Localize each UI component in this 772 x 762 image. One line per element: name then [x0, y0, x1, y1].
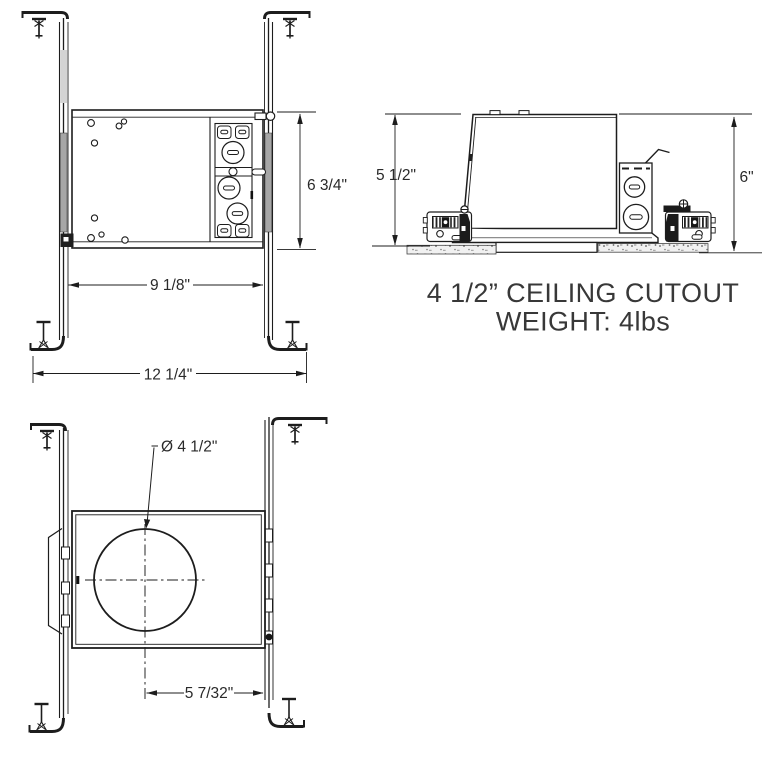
- ceiling-section-left: [407, 245, 496, 254]
- note-ceiling-cutout: 4 1/2” CEILING CUTOUT: [427, 278, 739, 308]
- dim-label-cutout-diameter: Ø 4 1/2": [161, 439, 217, 456]
- housing-front: [61, 110, 275, 248]
- side-view: 5 1/2" 6" 4 1/2” CEILING CUTOUT WEIGHT: …: [372, 111, 762, 337]
- mounting-nail: [32, 19, 46, 39]
- mounting-nail: [35, 704, 49, 731]
- mounting-nail: [40, 431, 54, 451]
- mounting-nail: [37, 322, 51, 349]
- bar-lock-screw: [255, 113, 266, 120]
- technical-drawing: 6 3/4" 9 1/8" 12 1/4": [0, 0, 772, 762]
- dim-side-housing-height: 5 1/2": [372, 115, 430, 247]
- dim-label-front-height: 6 3/4": [307, 177, 347, 194]
- dim-label-overall-width: 12 1/4": [144, 367, 193, 384]
- dim-housing-width: 9 1/8": [69, 277, 264, 294]
- ceiling-section-right: [598, 244, 708, 253]
- mounting-nail: [286, 322, 300, 349]
- mounting-plate-bottom: [72, 511, 265, 701]
- bar-foot-left: [423, 206, 471, 242]
- note-weight: WEIGHT: 4lbs: [496, 307, 670, 337]
- notes: 4 1/2” CEILING CUTOUT WEIGHT: 4lbs: [427, 278, 739, 337]
- front-view: 6 3/4" 9 1/8" 12 1/4": [23, 11, 347, 384]
- mounting-nail: [283, 19, 297, 39]
- dim-label-housing-width: 9 1/8": [150, 277, 190, 294]
- dim-overall-width: 12 1/4": [33, 352, 307, 384]
- dim-label-side-overall-height: 6": [740, 169, 754, 186]
- hanger-bar-left: [23, 11, 69, 351]
- hanger-bar-right: [265, 11, 310, 351]
- spec-sheet-drawing: 6 3/4" 9 1/8" 12 1/4": [0, 0, 772, 762]
- dim-label-center-offset: 5 7/32": [185, 685, 234, 702]
- dim-center-offset: 5 7/32": [147, 685, 264, 702]
- hanger-bar-left-bottom: [30, 423, 70, 733]
- mounting-nail: [282, 699, 296, 726]
- trim-ring: [496, 243, 597, 253]
- junction-box-side: [620, 150, 670, 234]
- mounting-nail: [288, 425, 302, 445]
- dim-label-side-housing-height: 5 1/2": [376, 167, 416, 184]
- bottom-view: Ø 4 1/2" 5 7/32": [30, 417, 327, 733]
- wiring-clip: [646, 150, 670, 164]
- dim-front-height: 6 3/4": [277, 112, 347, 250]
- bar-foot-right: [664, 200, 716, 242]
- hanger-bar-right-bottom: [264, 417, 327, 728]
